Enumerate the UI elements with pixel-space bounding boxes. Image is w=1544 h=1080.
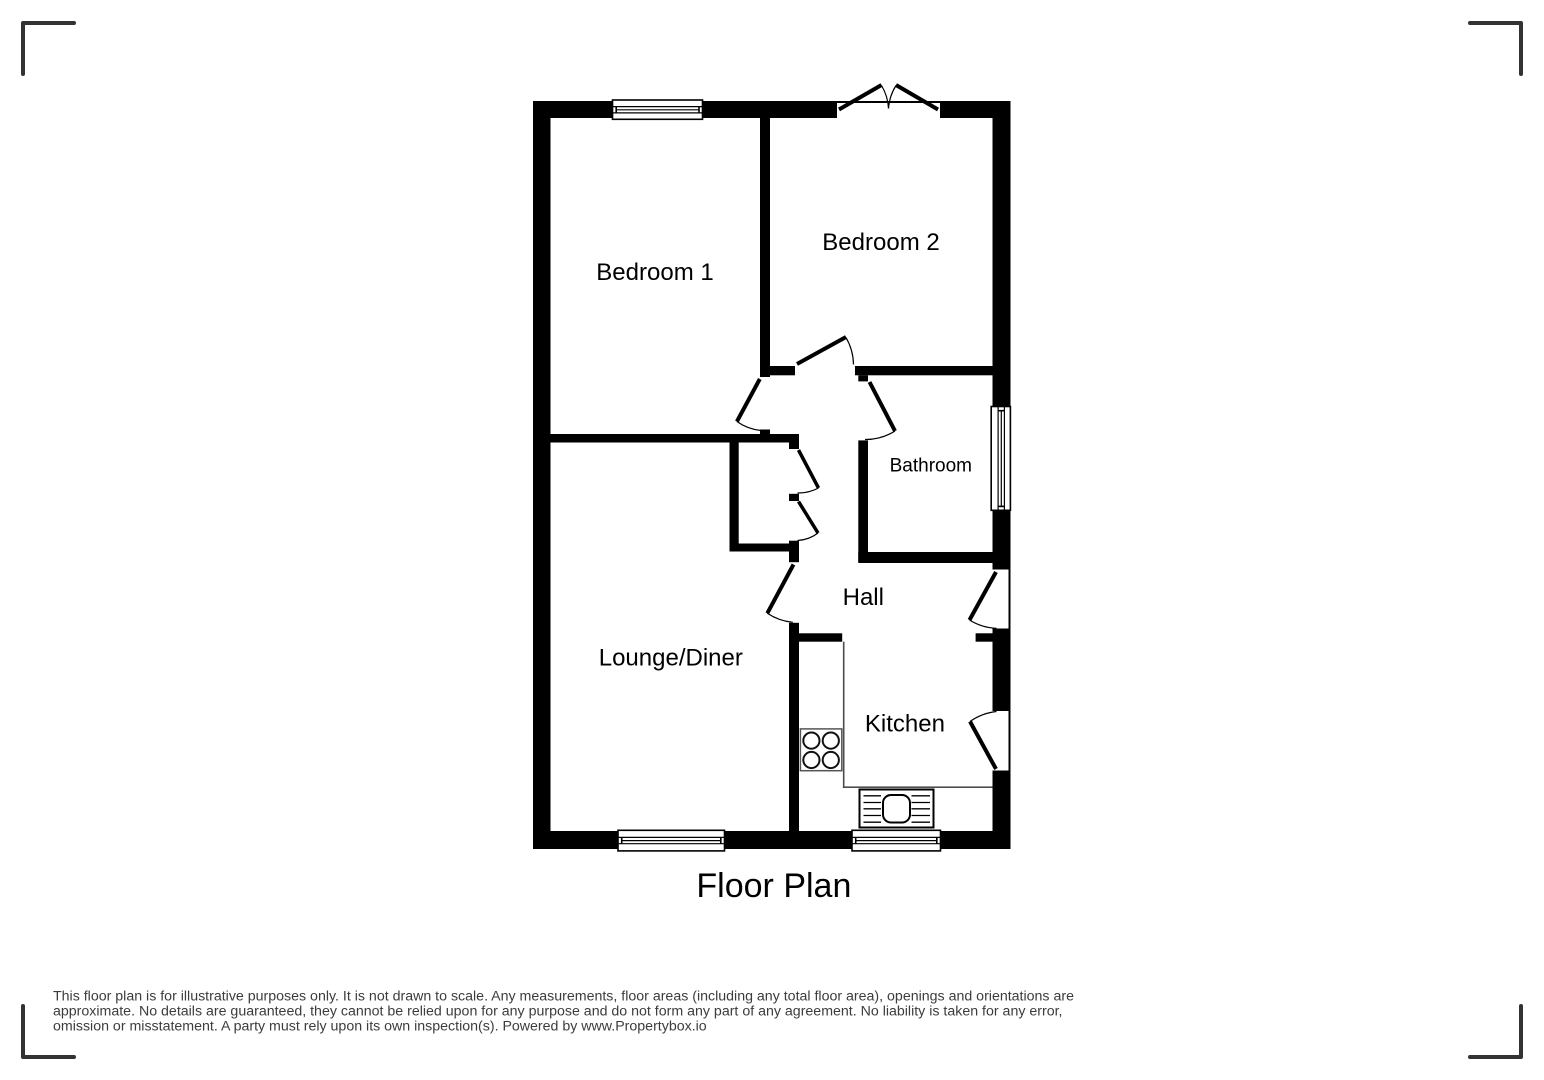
svg-text:Lounge/Diner: Lounge/Diner — [599, 645, 743, 672]
svg-text:Kitchen: Kitchen — [865, 711, 945, 738]
svg-text:Floor Plan: Floor Plan — [696, 867, 851, 905]
svg-text:Bathroom: Bathroom — [890, 456, 972, 477]
svg-text:omission or misstatement. A pa: omission or misstatement. A party must r… — [53, 1019, 707, 1035]
svg-text:This floor plan is for illustr: This floor plan is for illustrative purp… — [53, 988, 1074, 1004]
svg-text:Bedroom 1: Bedroom 1 — [596, 259, 713, 286]
svg-text:approximate. No details are gu: approximate. No details are guaranteed, … — [53, 1003, 1062, 1019]
svg-text:Hall: Hall — [843, 584, 884, 611]
svg-text:Bedroom 2: Bedroom 2 — [822, 229, 939, 256]
